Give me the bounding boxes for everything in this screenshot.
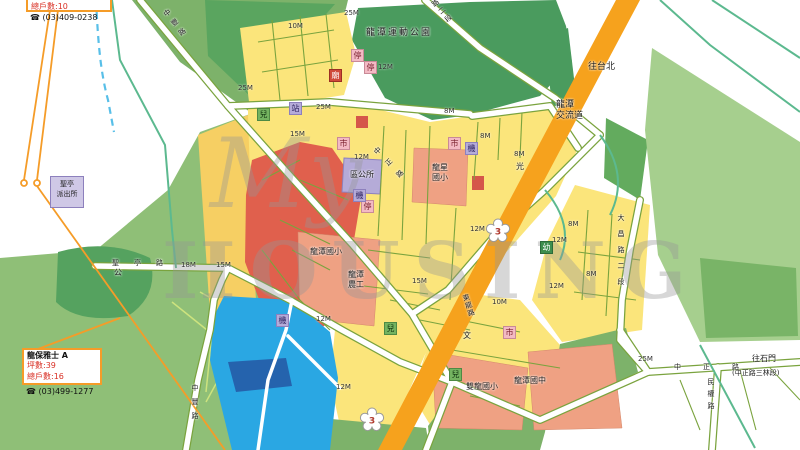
road-width-label: 15M <box>216 261 231 269</box>
map-canvas: 3 3 <box>0 0 800 450</box>
road-dachang: 大昌路二段 <box>616 214 626 294</box>
road-width-label: 25M <box>316 103 331 111</box>
marker-kindergarten: 幼 <box>540 241 553 254</box>
info-box-top: 總戶數:10 <box>26 0 112 12</box>
road-width-label: 25M <box>344 9 359 17</box>
zoning-map: 3 3 My HOUSING 龍潭運動公園 往台北 龍潭 交流道 區公所 龍星 … <box>0 0 800 450</box>
label-shuanglong-elem: 雙龍國小 <box>466 382 498 392</box>
marker-parking: 停 <box>351 49 364 62</box>
route-3-shield-number: 3 <box>495 228 501 238</box>
label-to-taipei: 往台北 <box>588 62 615 73</box>
label-park-abbrev: 公 <box>114 268 122 278</box>
marker-utility: 機 <box>276 314 289 327</box>
label-longxing-elem: 龍星 國小 <box>432 163 448 182</box>
road-width-label: 12M <box>470 225 485 233</box>
road-width-label: 8M <box>444 107 455 115</box>
road-width-label: 12M <box>378 63 393 71</box>
police-station-box: 聖亭 派出所 <box>50 176 84 208</box>
phone-icon: ☎ <box>26 387 36 396</box>
marker-market: 市 <box>448 137 461 150</box>
marker-station: 站 <box>289 102 302 115</box>
marker-market: 市 <box>337 137 350 150</box>
label-longtan-agri: 龍潭 農工 <box>348 270 364 289</box>
marker-temple: 廟 <box>329 69 342 82</box>
road-width-label: 25M <box>638 355 653 363</box>
road-width-label: 8M <box>586 270 597 278</box>
info-bottom-title: 龍保雅士 A <box>27 351 97 361</box>
marker-guang: 光 <box>516 162 524 172</box>
road-width-label: 15M <box>290 130 305 138</box>
marker-parking: 停 <box>364 61 377 74</box>
phone-number: (03)499-1277 <box>39 387 94 396</box>
road-shengting: 聖亭路 <box>112 258 178 268</box>
info-box-bottom: 龍保雅士 A 坪數:39 總戶數:16 <box>22 348 102 385</box>
marker-utility: 機 <box>353 189 366 202</box>
phone-icon: ☎ <box>30 13 40 22</box>
label-longtan-jhs: 龍潭國中 <box>514 376 546 386</box>
marker-culture: 文 <box>463 331 471 341</box>
label-longtan-elem: 龍潭國小 <box>310 247 342 257</box>
road-width-label: 12M <box>316 315 331 323</box>
road-width-label: 25M <box>238 84 253 92</box>
road-minquan: 民權路 <box>706 378 716 414</box>
road-width-label: 12M <box>336 383 351 391</box>
road-zhongfeng-south: 中豐路 <box>190 384 200 426</box>
label-interchange: 龍潭 交流道 <box>556 100 583 122</box>
road-width-label: 10M <box>492 298 507 306</box>
marker-utility: 機 <box>465 142 478 155</box>
road-width-label: 12M <box>354 153 369 161</box>
info-top-households: 總戶數:10 <box>31 2 107 12</box>
road-width-label: 12M <box>552 236 567 244</box>
road-width-label: 8M <box>514 150 525 158</box>
marker-children-park: 兒 <box>449 368 462 381</box>
road-width-label: 8M <box>480 132 491 140</box>
info-bottom-area: 坪數:39 <box>27 361 97 371</box>
road-width-label: 18M <box>181 261 196 269</box>
marker-children-park: 兒 <box>257 108 270 121</box>
road-zhongzheng-east: 中正路 <box>674 362 761 372</box>
route-3-shield-number: 3 <box>369 417 375 427</box>
info-bottom-phone: ☎ (03)499-1277 <box>26 387 93 396</box>
road-width-label: 12M <box>549 282 564 290</box>
road-width-label: 10M <box>288 22 303 30</box>
phone-number: (03)409-0238 <box>43 13 98 22</box>
road-width-label: 15M <box>412 277 427 285</box>
info-top-phone: ☎ (03)409-0238 <box>30 13 97 22</box>
label-district-office: 區公所 <box>350 170 374 180</box>
marker-market: 市 <box>503 326 516 339</box>
road-width-label: 8M <box>568 220 579 228</box>
info-bottom-households: 總戶數:16 <box>27 372 97 382</box>
label-sports-park: 龍潭運動公園 <box>366 28 432 39</box>
marker-children-park: 兒 <box>384 322 397 335</box>
